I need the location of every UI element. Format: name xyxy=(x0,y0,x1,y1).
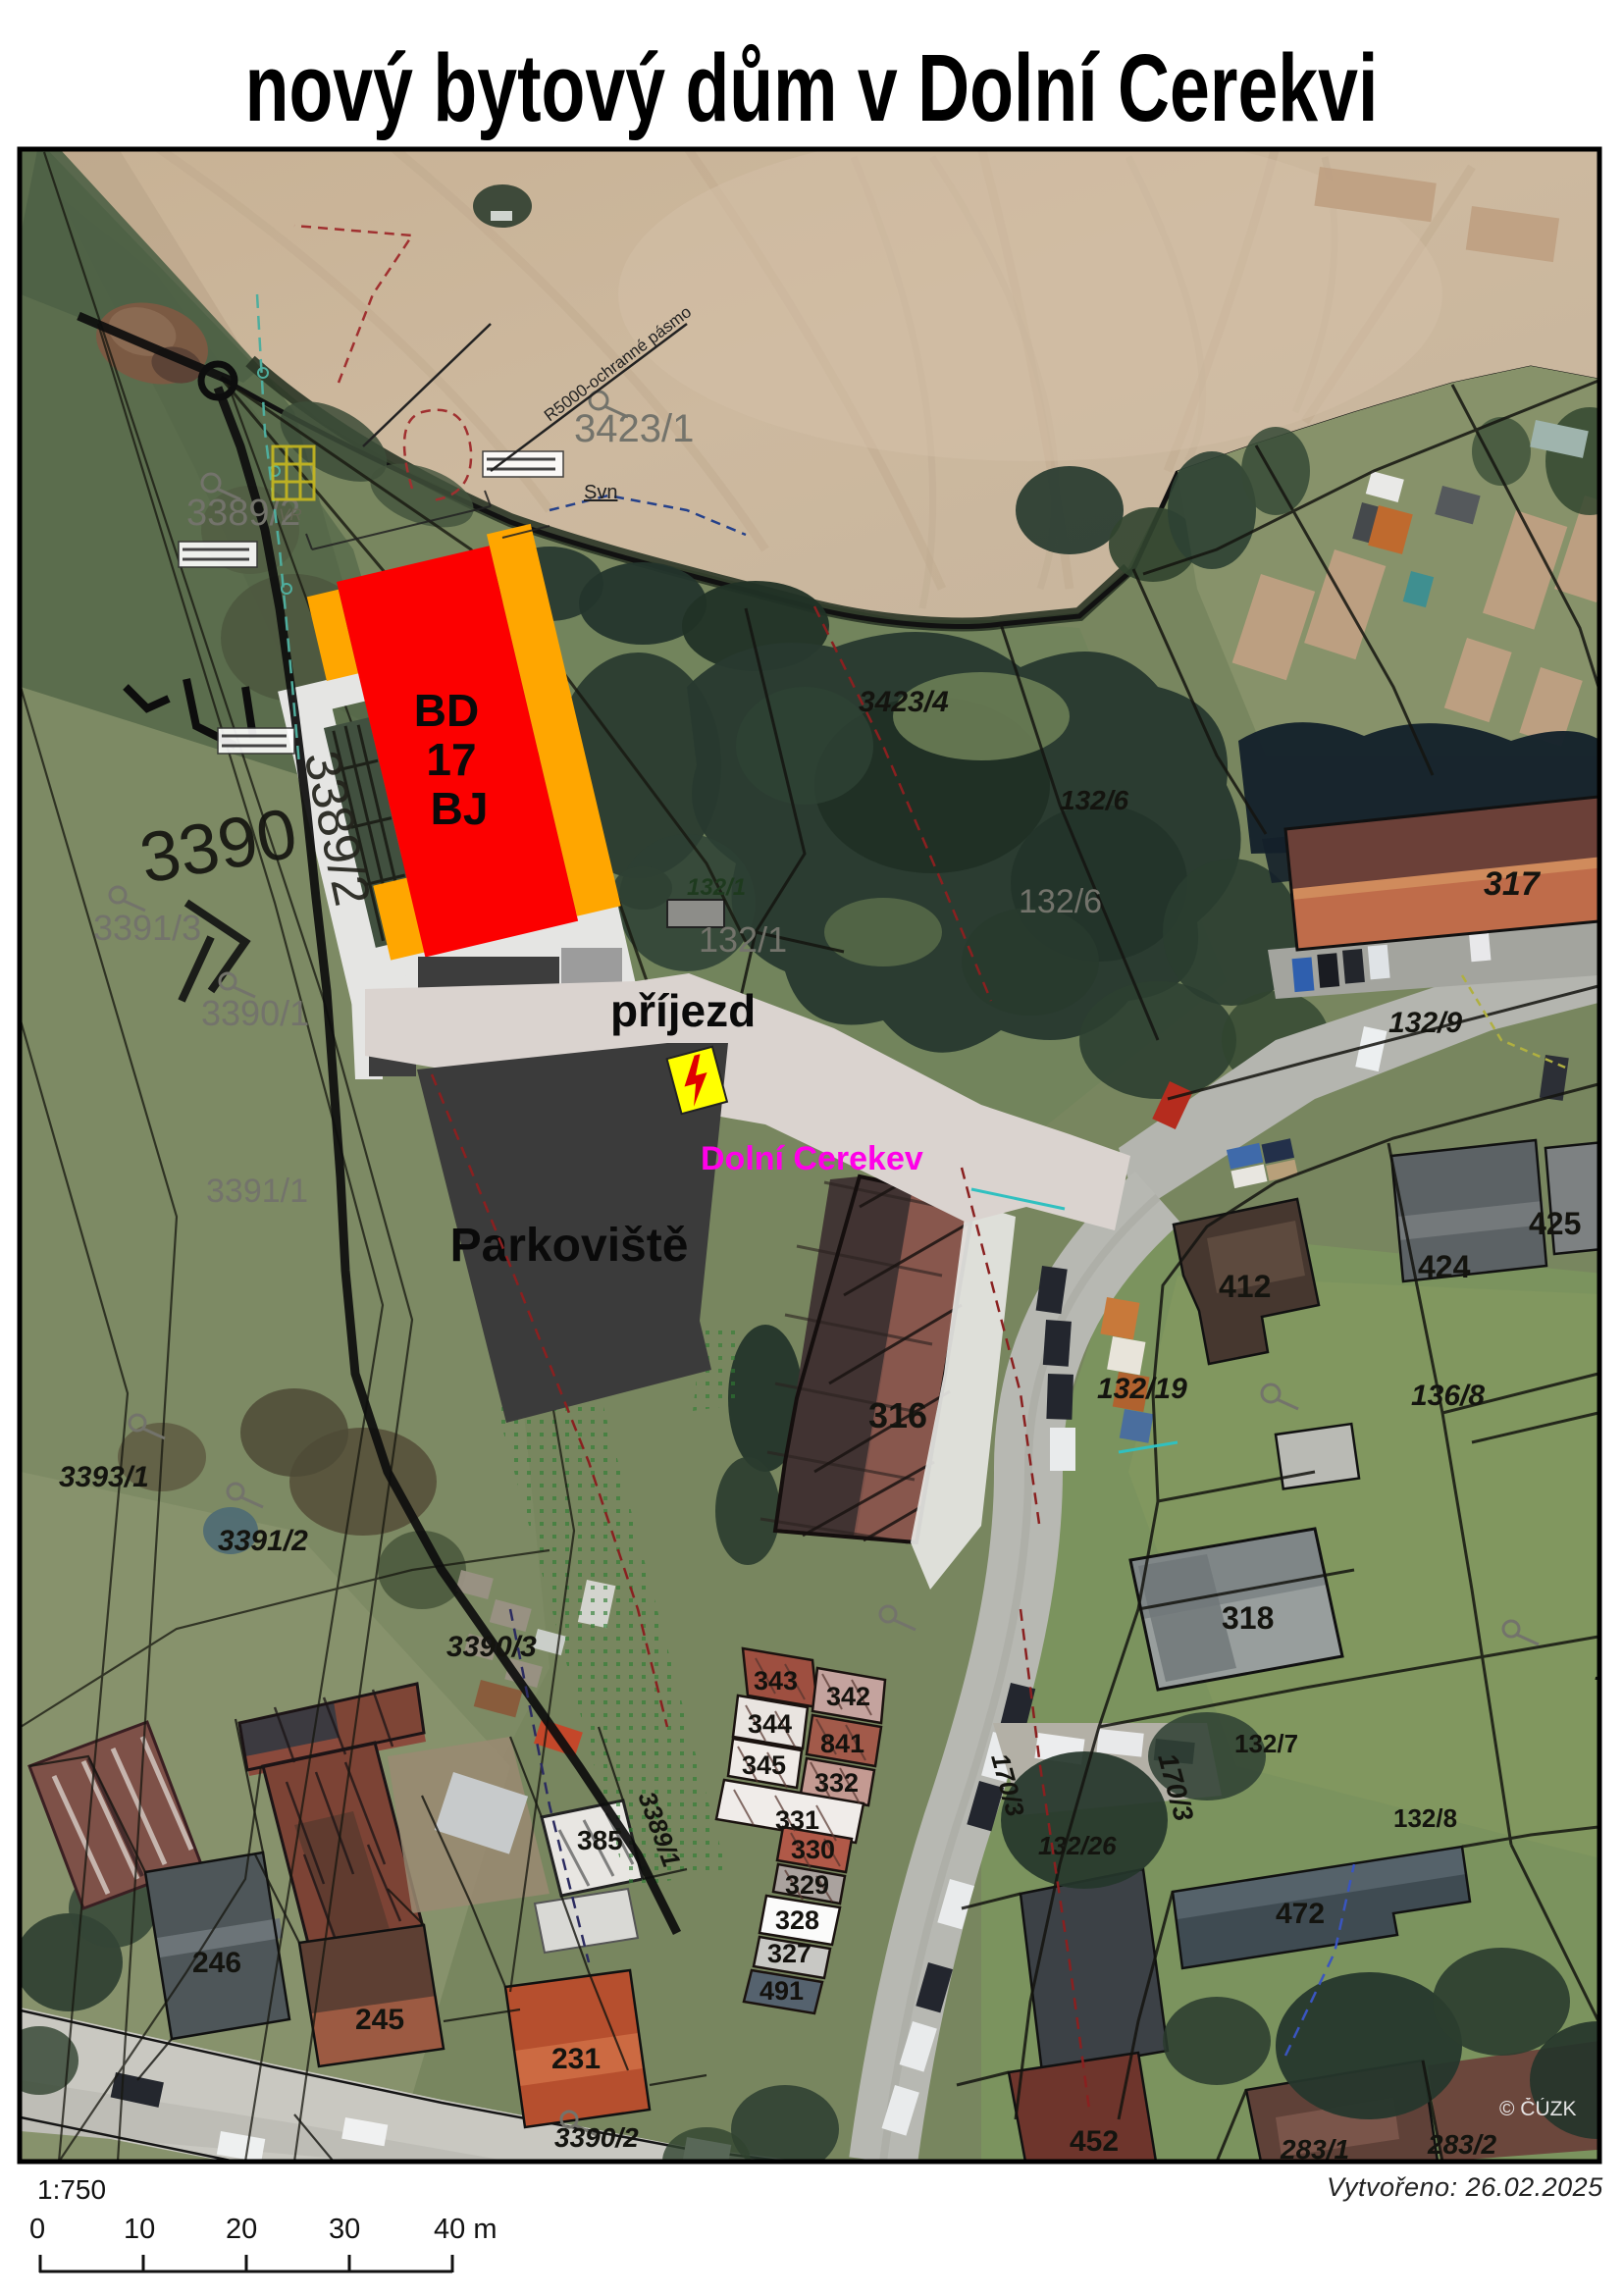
svg-text:316: 316 xyxy=(868,1395,927,1435)
svg-text:3393/1: 3393/1 xyxy=(59,1461,149,1493)
svg-text:VR: VR xyxy=(279,505,302,524)
svg-text:příjezd: příjezd xyxy=(610,985,756,1036)
svg-text:283/2: 283/2 xyxy=(1427,2129,1496,2160)
svg-text:331: 331 xyxy=(775,1805,819,1835)
svg-text:425: 425 xyxy=(1529,1206,1581,1241)
svg-text:Svn: Svn xyxy=(584,482,617,503)
svg-text:3423/4: 3423/4 xyxy=(859,686,949,718)
svg-text:132/9: 132/9 xyxy=(1388,1007,1462,1039)
svg-text:327: 327 xyxy=(767,1939,811,1968)
svg-text:3390/2: 3390/2 xyxy=(554,2122,639,2153)
svg-text:3390/3: 3390/3 xyxy=(446,1631,537,1663)
svg-text:344: 344 xyxy=(748,1709,792,1739)
svg-text:132/26: 132/26 xyxy=(1038,1831,1117,1860)
svg-text:329: 329 xyxy=(785,1870,829,1900)
svg-text:231: 231 xyxy=(551,2043,601,2075)
svg-text:246: 246 xyxy=(192,1947,241,1979)
svg-text:Parkoviště: Parkoviště xyxy=(450,1220,689,1272)
svg-text:317: 317 xyxy=(1484,865,1542,903)
svg-text:343: 343 xyxy=(754,1666,798,1696)
svg-text:132/1: 132/1 xyxy=(687,874,746,901)
svg-text:491: 491 xyxy=(759,1976,804,2006)
svg-text:330: 330 xyxy=(791,1835,835,1864)
svg-text:3391/2: 3391/2 xyxy=(218,1525,308,1557)
svg-text:412: 412 xyxy=(1219,1269,1271,1304)
svg-text:132/6: 132/6 xyxy=(1019,883,1102,920)
svg-text:318: 318 xyxy=(1222,1600,1274,1636)
svg-text:245: 245 xyxy=(355,2004,404,2036)
svg-text:132/6: 132/6 xyxy=(1060,785,1128,815)
svg-text:3391/1: 3391/1 xyxy=(206,1173,308,1210)
svg-text:424: 424 xyxy=(1418,1249,1471,1284)
svg-text:385: 385 xyxy=(577,1825,623,1855)
svg-text:841: 841 xyxy=(820,1729,864,1758)
svg-text:Dolní Cerekev: Dolní Cerekev xyxy=(701,1140,923,1177)
svg-text:132/7: 132/7 xyxy=(1234,1729,1298,1758)
svg-text:132/1: 132/1 xyxy=(699,919,787,960)
svg-text:3390/1: 3390/1 xyxy=(201,993,309,1033)
svg-text:136/8: 136/8 xyxy=(1411,1380,1485,1412)
svg-text:© ČÚZK: © ČÚZK xyxy=(1499,2098,1576,2120)
svg-text:132/19: 132/19 xyxy=(1097,1373,1187,1405)
svg-text:452: 452 xyxy=(1070,2125,1119,2158)
svg-text:332: 332 xyxy=(814,1768,859,1798)
svg-text:342: 342 xyxy=(826,1682,870,1711)
svg-text:BJ: BJ xyxy=(431,783,489,834)
svg-text:17: 17 xyxy=(426,734,476,785)
svg-text:328: 328 xyxy=(775,1905,819,1935)
svg-text:BD: BD xyxy=(414,685,479,736)
svg-text:132/8: 132/8 xyxy=(1393,1803,1457,1833)
svg-text:3391/3: 3391/3 xyxy=(93,908,201,948)
svg-text:3423/1: 3423/1 xyxy=(574,407,694,450)
svg-text:472: 472 xyxy=(1276,1898,1325,1930)
svg-text:345: 345 xyxy=(742,1750,786,1780)
